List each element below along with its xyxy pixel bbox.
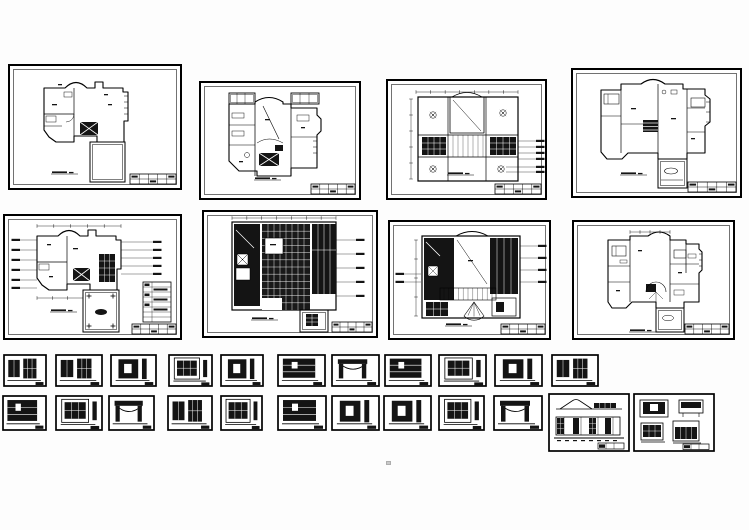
detail-1-6[interactable] — [277, 354, 326, 387]
detail-1-6-drawing — [277, 354, 326, 387]
detail-2-2[interactable] — [55, 395, 103, 431]
ceiling-sheet-2[interactable] — [388, 220, 551, 340]
plan-sheet-5-drawing — [572, 220, 735, 340]
detail-1-5-drawing — [220, 354, 264, 387]
floor-tile-sheet-drawing — [202, 210, 378, 338]
cad-drawing-workspace — [0, 0, 749, 530]
detail-1-10-drawing — [494, 354, 543, 387]
detail-1-2[interactable] — [55, 354, 103, 387]
plan-sheet-2-drawing — [199, 81, 361, 200]
detail-1-4[interactable] — [168, 354, 213, 387]
detail-2-8-drawing — [383, 395, 432, 431]
floor-tile-sheet[interactable] — [202, 210, 378, 338]
plan-sheet-4-drawing — [3, 214, 182, 340]
detail-1-3[interactable] — [110, 354, 157, 387]
detail-2-6[interactable] — [277, 395, 327, 431]
detail-1-5[interactable] — [220, 354, 264, 387]
detail-2-4[interactable] — [167, 395, 213, 431]
detail-2-1[interactable] — [2, 395, 47, 431]
detail-2-4-drawing — [167, 395, 213, 431]
detail-2-3[interactable] — [108, 395, 155, 431]
elevation-sheet-long[interactable] — [548, 393, 630, 452]
detail-1-11-drawing — [551, 354, 599, 387]
detail-1-1-drawing — [3, 354, 47, 387]
detail-1-9[interactable] — [438, 354, 487, 387]
detail-2-7[interactable] — [331, 395, 380, 431]
plan-sheet-5[interactable] — [572, 220, 735, 340]
detail-2-5[interactable] — [220, 395, 263, 431]
ceiling-sheet-2-drawing — [388, 220, 551, 340]
detail-2-1-drawing — [2, 395, 47, 431]
ceiling-sheet-1-drawing — [386, 79, 547, 200]
elevation-sheet-quad[interactable] — [633, 393, 715, 452]
plan-sheet-2[interactable] — [199, 81, 361, 200]
plan-sheet-1-drawing — [8, 64, 182, 190]
plan-sheet-3-drawing — [571, 68, 742, 198]
detail-1-7[interactable] — [331, 354, 380, 387]
detail-1-3-drawing — [110, 354, 157, 387]
detail-1-7-drawing — [331, 354, 380, 387]
detail-2-3-drawing — [108, 395, 155, 431]
plan-sheet-1[interactable] — [8, 64, 182, 190]
detail-1-2-drawing — [55, 354, 103, 387]
detail-1-9-drawing — [438, 354, 487, 387]
detail-2-6-drawing — [277, 395, 327, 431]
detail-1-8-drawing — [384, 354, 432, 387]
detail-1-1[interactable] — [3, 354, 47, 387]
detail-1-4-drawing — [168, 354, 213, 387]
detail-2-5-drawing — [220, 395, 263, 431]
detail-2-10[interactable] — [493, 395, 543, 431]
detail-2-8[interactable] — [383, 395, 432, 431]
stray-mark — [386, 461, 391, 465]
detail-2-9-drawing — [438, 395, 485, 431]
detail-2-10-drawing — [493, 395, 543, 431]
detail-1-10[interactable] — [494, 354, 543, 387]
ceiling-sheet-1[interactable] — [386, 79, 547, 200]
detail-2-2-drawing — [55, 395, 103, 431]
detail-1-8[interactable] — [384, 354, 432, 387]
detail-2-7-drawing — [331, 395, 380, 431]
plan-sheet-4[interactable] — [3, 214, 182, 340]
plan-sheet-3[interactable] — [571, 68, 742, 198]
detail-1-11[interactable] — [551, 354, 599, 387]
elevation-sheet-quad-drawing — [633, 393, 715, 452]
detail-2-9[interactable] — [438, 395, 485, 431]
elevation-sheet-long-drawing — [548, 393, 630, 452]
